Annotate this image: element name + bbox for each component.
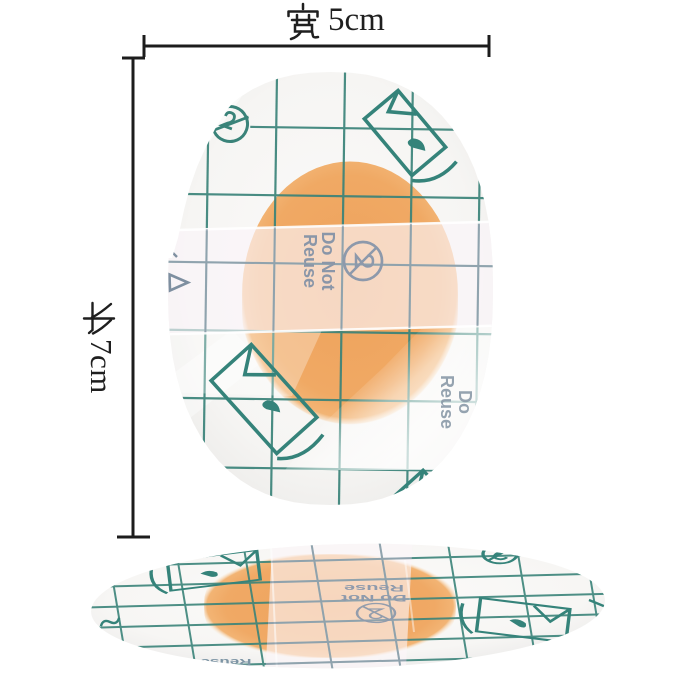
svg-text:Do: Do (455, 390, 475, 414)
svg-text:Reuse: Reuse (300, 234, 320, 288)
svg-text:Do Not: Do Not (318, 232, 338, 291)
svg-text:Do Not: Do Not (340, 593, 406, 603)
svg-text:5cm: 5cm (328, 2, 385, 38)
svg-text:Reuse: Reuse (437, 375, 457, 429)
svg-text:7cm: 7cm (84, 339, 119, 394)
svg-text:Reuse: Reuse (344, 582, 404, 592)
